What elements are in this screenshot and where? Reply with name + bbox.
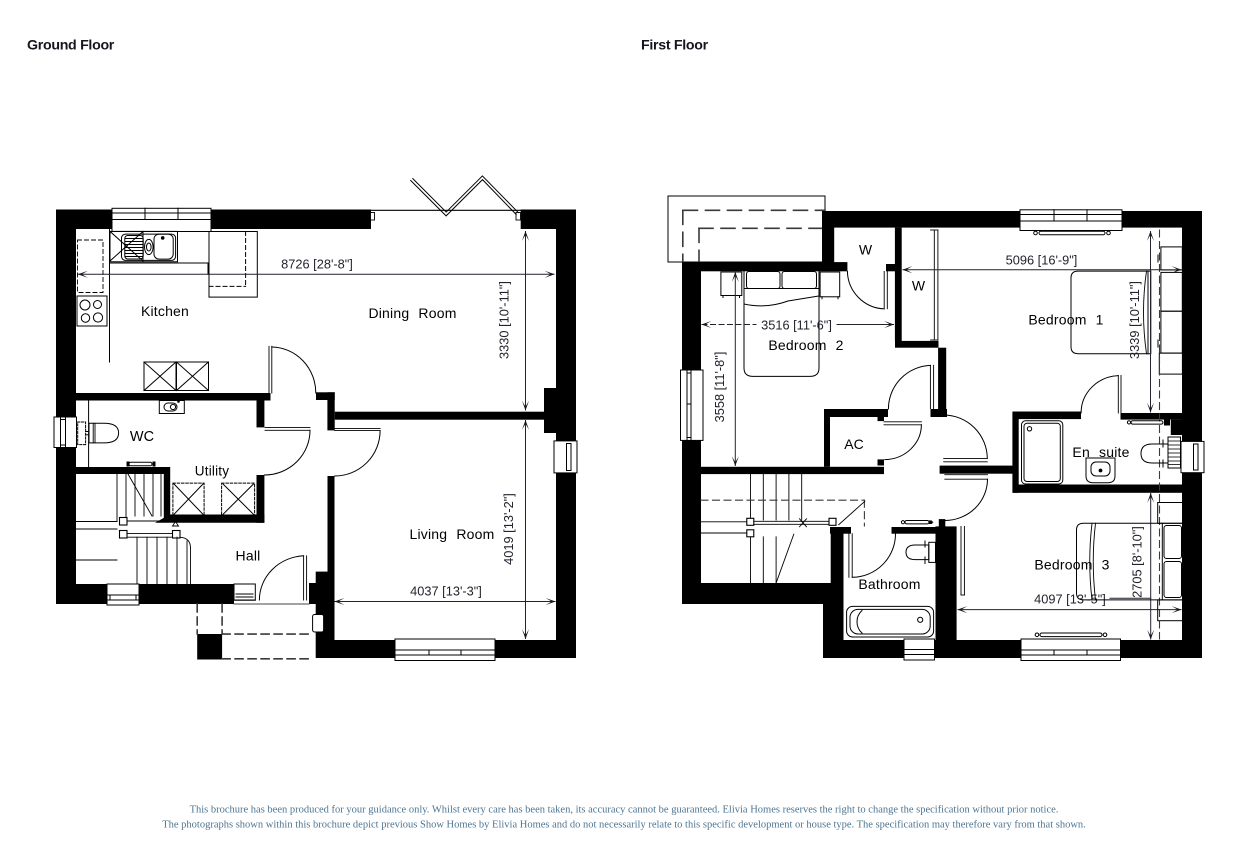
svg-text:5096 [16'-9"]: 5096 [16'-9"] [1006, 252, 1078, 267]
svg-text:Bedroom 1: Bedroom 1 [1028, 312, 1103, 328]
svg-text:Bathroom: Bathroom [858, 576, 920, 592]
svg-text:Hall: Hall [236, 548, 261, 564]
svg-text:3516 [11'-6"]: 3516 [11'-6"] [761, 317, 832, 332]
svg-text:This brochure has been produce: This brochure has been produced for your… [190, 805, 1059, 816]
svg-text:Living Room: Living Room [409, 526, 494, 542]
svg-text:First Floor: First Floor [641, 38, 709, 54]
svg-text:Ground Floor: Ground Floor [27, 38, 115, 54]
svg-text:2705 [8'-10"]: 2705 [8'-10"] [1130, 526, 1145, 598]
svg-text:Bedroom 2: Bedroom 2 [768, 337, 843, 353]
svg-text:En suite: En suite [1072, 444, 1129, 460]
svg-text:Bedroom 3: Bedroom 3 [1034, 557, 1109, 573]
svg-text:3330 [10'-11"]: 3330 [10'-11"] [497, 281, 512, 359]
svg-text:3339 [10'-11"]: 3339 [10'-11"] [1127, 281, 1142, 359]
svg-text:AC: AC [844, 436, 863, 452]
svg-text:Dining Room: Dining Room [368, 305, 456, 321]
svg-text:W: W [912, 278, 926, 294]
svg-text:The photographs shown within t: The photographs shown within this brochu… [162, 820, 1086, 831]
svg-text:WC: WC [130, 429, 154, 445]
svg-text:W: W [859, 242, 873, 258]
svg-text:Utility: Utility [195, 464, 229, 479]
svg-text:Kitchen: Kitchen [141, 303, 189, 319]
svg-text:4037 [13'-3"]: 4037 [13'-3"] [410, 584, 482, 599]
svg-text:3558 [11'-8"]: 3558 [11'-8"] [712, 352, 727, 423]
svg-text:4019 [13'-2"]: 4019 [13'-2"] [501, 493, 516, 565]
svg-text:8726 [28'-8"]: 8726 [28'-8"] [281, 256, 353, 271]
